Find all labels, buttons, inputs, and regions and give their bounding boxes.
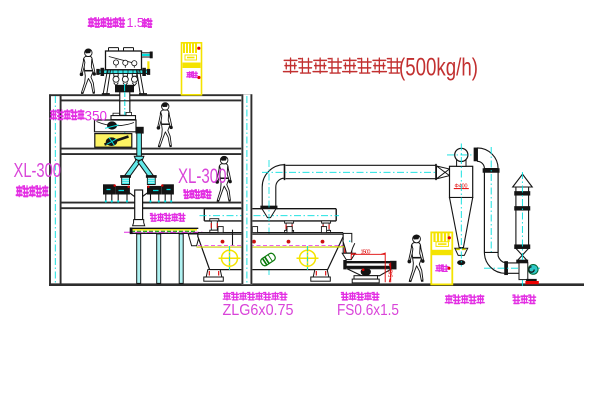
- svg-text:545: 545: [388, 270, 394, 278]
- svg-text:1500: 1500: [361, 250, 371, 256]
- svg-text:350: 350: [85, 109, 108, 124]
- svg-text:ZLG6x0.75: ZLG6x0.75: [223, 302, 294, 319]
- svg-text:1.5: 1.5: [127, 16, 144, 30]
- svg-text:XL-300: XL-300: [178, 165, 227, 188]
- svg-text:FS0.6x1.5: FS0.6x1.5: [337, 302, 399, 319]
- svg-text:XL-300: XL-300: [14, 159, 62, 182]
- svg-text:(500kg/h): (500kg/h): [399, 54, 478, 82]
